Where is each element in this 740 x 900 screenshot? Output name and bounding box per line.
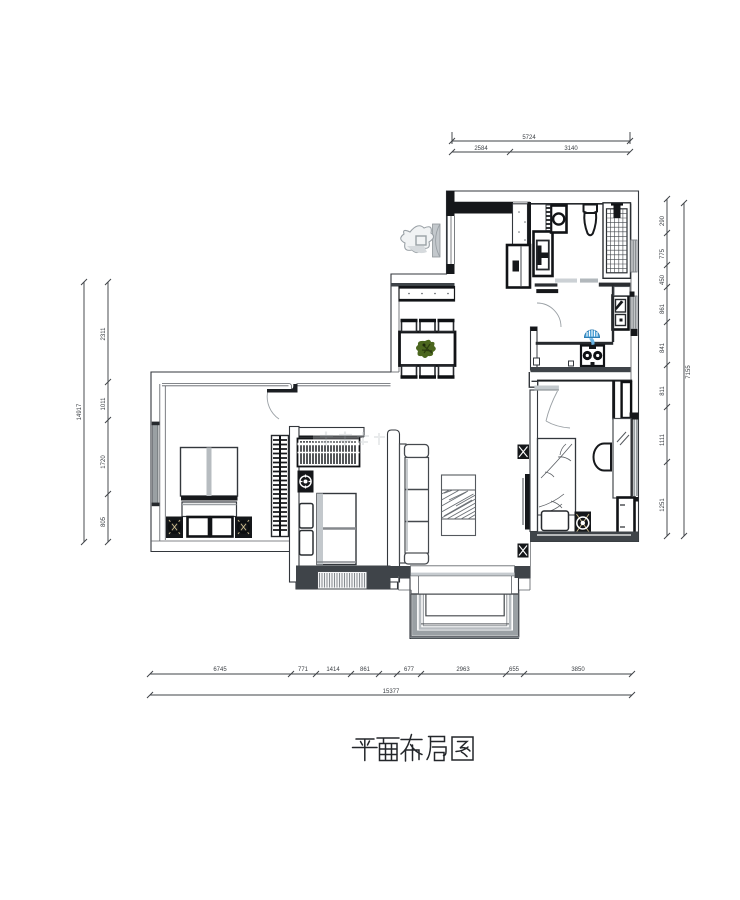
svg-text:1720: 1720	[101, 455, 107, 469]
svg-text:841: 841	[660, 342, 666, 353]
svg-text:677: 677	[404, 667, 415, 673]
svg-text:1011: 1011	[101, 397, 107, 411]
svg-text:1251: 1251	[660, 498, 666, 512]
svg-text:7155: 7155	[686, 365, 692, 379]
svg-text:3140: 3140	[564, 146, 578, 152]
svg-text:15377: 15377	[383, 689, 400, 695]
svg-text:3850: 3850	[571, 667, 585, 673]
svg-text:2311: 2311	[101, 327, 107, 341]
svg-text:14917: 14917	[77, 403, 83, 420]
svg-text:6745: 6745	[213, 667, 227, 673]
svg-text:290: 290	[660, 215, 666, 226]
svg-text:861: 861	[360, 667, 371, 673]
svg-text:805: 805	[101, 516, 107, 527]
svg-text:1111: 1111	[660, 433, 666, 446]
svg-text:655: 655	[509, 667, 520, 673]
svg-text:861: 861	[660, 303, 666, 314]
svg-text:1414: 1414	[326, 667, 340, 673]
svg-text:5724: 5724	[522, 135, 536, 141]
svg-text:811: 811	[660, 386, 666, 396]
svg-text:2963: 2963	[456, 667, 470, 673]
svg-text:2584: 2584	[474, 146, 488, 152]
svg-text:771: 771	[298, 667, 309, 673]
svg-text:775: 775	[660, 248, 666, 259]
svg-text:450: 450	[660, 274, 666, 285]
